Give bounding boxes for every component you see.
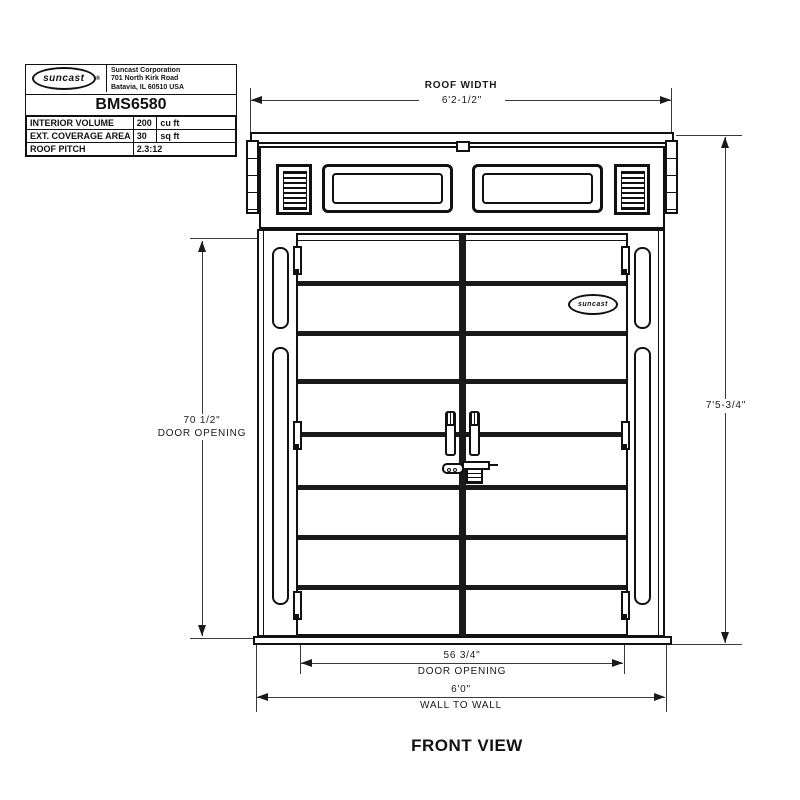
latch-hole-icon: [453, 468, 457, 472]
registered-mark: ®: [96, 76, 100, 82]
spec-label: ROOF PITCH: [27, 143, 134, 156]
arrowhead-right-icon: [612, 659, 623, 667]
arrowhead-left-icon: [301, 659, 312, 667]
handle-grip-texture: [447, 413, 454, 426]
hinge-right-top: [621, 246, 630, 275]
title-block-header-row: suncast ® Suncast Corporation 701 North …: [26, 65, 236, 95]
door-logo-text: suncast: [578, 301, 608, 308]
roof-fascia-panel: [259, 146, 665, 229]
spec-value: 200: [133, 117, 157, 130]
arrowhead-right-icon: [654, 693, 665, 701]
door-opening-width-label: DOOR OPENING: [397, 666, 527, 677]
extension-line: [671, 88, 672, 132]
spec-table: INTERIOR VOLUME 200 cu ft EXT. COVERAGE …: [26, 116, 236, 156]
latch-plate: [442, 463, 464, 474]
hinge-left-middle: [293, 421, 302, 450]
view-title: FRONT VIEW: [367, 736, 567, 756]
arrowhead-down-icon: [198, 625, 206, 636]
extension-line: [250, 88, 251, 132]
handle-grip-texture: [471, 413, 478, 426]
roof-width-value: 6'2-1/2": [419, 94, 505, 107]
padlock-hasp-body: [466, 468, 483, 484]
spec-label: INTERIOR VOLUME: [27, 117, 134, 130]
extension-line: [256, 645, 257, 712]
suncast-logo-icon: suncast: [32, 67, 96, 90]
latch-hole-icon: [447, 468, 451, 472]
base-rail: [253, 636, 672, 645]
address-line2: Batavia, IL 60510 USA: [111, 84, 236, 92]
louver-slats-left: [283, 171, 307, 210]
hinge-left-top: [293, 246, 302, 275]
spec-value: 2.3:12: [133, 143, 235, 156]
arrowhead-down-icon: [721, 632, 729, 643]
hinge-left-bottom: [293, 591, 302, 620]
model-number: BMS6580: [26, 95, 236, 116]
wall-inner-line-left: [263, 229, 264, 636]
transom-window-left-pane: [332, 173, 443, 204]
dimension-line-wall-to-wall: [257, 697, 665, 698]
side-panel-groove-left-top: [272, 247, 289, 329]
roof-side-return-left: [246, 140, 259, 214]
door-opening-height-value: 70 1/2": [147, 414, 257, 427]
transom-window-right-pane: [482, 173, 593, 204]
arrowhead-left-icon: [257, 693, 268, 701]
address-line1: 701 North Kirk Road: [111, 75, 236, 83]
hasp-pin: [489, 464, 498, 466]
wall-to-wall-label: WALL TO WALL: [396, 700, 526, 711]
logo-text: suncast: [43, 73, 84, 84]
extension-line: [676, 135, 742, 136]
spec-row-interior-volume: INTERIOR VOLUME 200 cu ft: [27, 117, 236, 130]
door-opening-height-label: DOOR OPENING: [147, 427, 257, 440]
company-address: Suncast Corporation 701 North Kirk Road …: [107, 65, 236, 94]
hinge-right-middle: [621, 421, 630, 450]
side-panel-groove-left-bottom: [272, 347, 289, 605]
dimension-line-door-width: [301, 663, 623, 664]
title-block: suncast ® Suncast Corporation 701 North …: [25, 64, 237, 157]
door-suncast-logo-icon: suncast: [568, 294, 618, 315]
wall-to-wall-value: 6'0": [411, 684, 511, 695]
dimension-line-overall-height: [725, 137, 726, 643]
extension-line: [668, 644, 742, 645]
spec-unit: sq ft: [157, 130, 236, 143]
side-panel-groove-right-bottom: [634, 347, 651, 605]
door-opening-width-value: 56 3/4": [412, 650, 512, 661]
door-center-astragal: [459, 233, 466, 636]
extension-line: [624, 645, 625, 674]
spec-unit: cu ft: [157, 117, 236, 130]
roof-ridge-joint: [456, 141, 470, 152]
roof-side-return-right: [665, 140, 678, 214]
arrowhead-up-icon: [198, 241, 206, 252]
spec-row-coverage-area: EXT. COVERAGE AREA 30 sq ft: [27, 130, 236, 143]
arrowhead-up-icon: [721, 137, 729, 148]
side-panel-groove-right-top: [634, 247, 651, 329]
arrowhead-right-icon: [660, 96, 671, 104]
suncast-logo-cell: suncast ®: [26, 65, 107, 92]
overall-height-value: 7'5-3/4": [684, 399, 768, 413]
louver-slats-right: [621, 171, 645, 210]
shed-spec-drawing: suncast ® Suncast Corporation 701 North …: [0, 0, 800, 800]
door-handle-right: [469, 411, 480, 456]
hinge-right-bottom: [621, 591, 630, 620]
spec-row-roof-pitch: ROOF PITCH 2.3:12: [27, 143, 236, 156]
extension-line: [190, 238, 258, 239]
roof-width-title: ROOF WIDTH: [361, 80, 561, 91]
wall-inner-line-right: [658, 229, 659, 636]
arrowhead-left-icon: [251, 96, 262, 104]
spec-label: EXT. COVERAGE AREA: [27, 130, 134, 143]
spec-value: 30: [133, 130, 157, 143]
door-handle-left: [445, 411, 456, 456]
extension-line: [190, 638, 258, 639]
extension-line: [666, 645, 667, 712]
door-opening-height-dim: 70 1/2" DOOR OPENING: [147, 414, 257, 440]
company-name: Suncast Corporation: [111, 67, 236, 75]
